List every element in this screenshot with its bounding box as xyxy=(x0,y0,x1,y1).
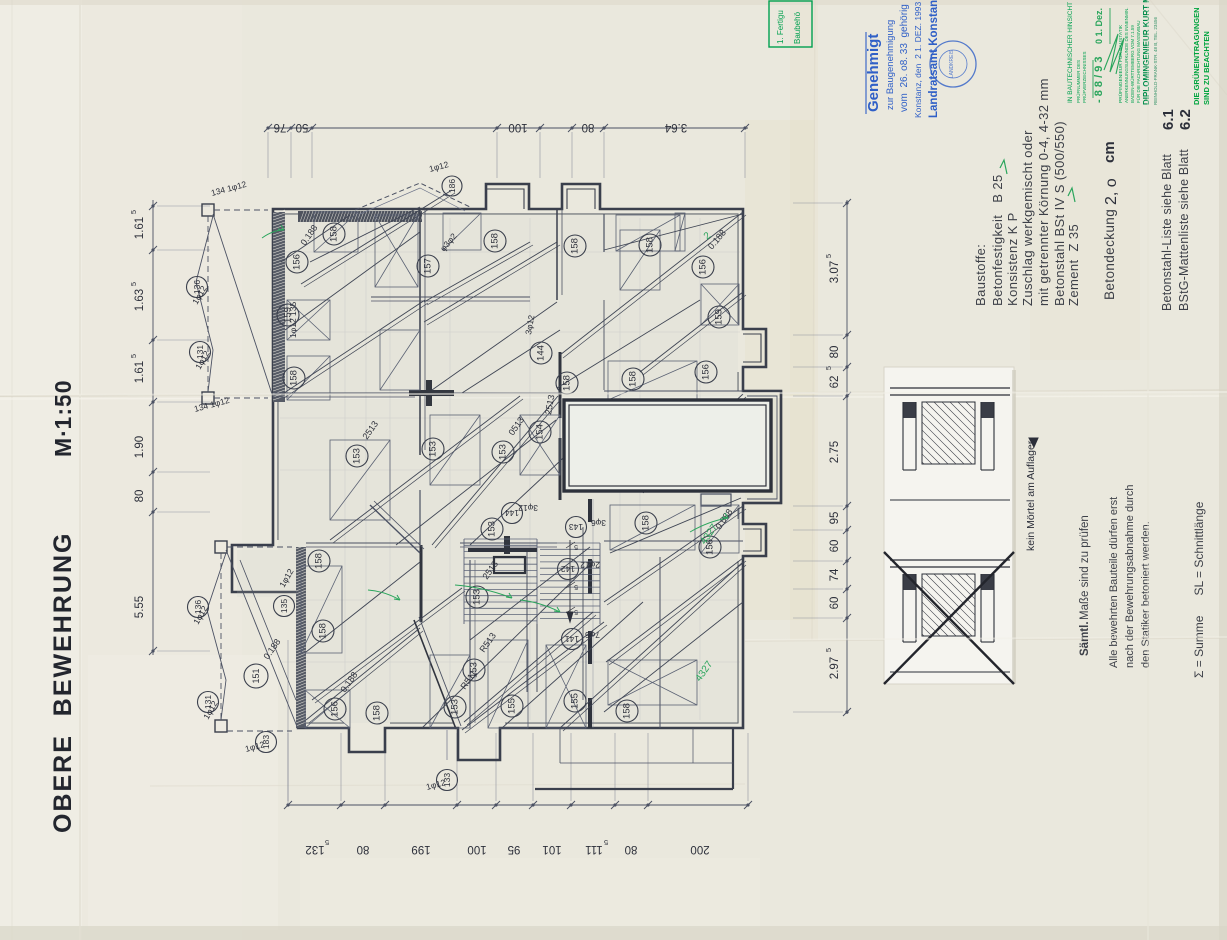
svg-text:159: 159 xyxy=(714,309,725,325)
svg-text:Genehmigt: Genehmigt xyxy=(865,34,882,112)
svg-text:2φ12: 2φ12 xyxy=(580,560,600,570)
svg-text:3φ12: 3φ12 xyxy=(518,503,538,513)
svg-text:1.61: 1.61 xyxy=(134,217,146,239)
svg-text:156: 156 xyxy=(330,701,341,717)
svg-text:5: 5 xyxy=(129,210,138,214)
svg-text:ANERKENNUNGSURKUNDE DES INNENM: ANERKENNUNGSURKUNDE DES INNENMIN. xyxy=(1124,7,1129,103)
svg-text:5.55: 5.55 xyxy=(134,596,146,618)
svg-text:2.97: 2.97 xyxy=(829,657,841,679)
svg-text:100: 100 xyxy=(508,121,527,133)
svg-text:IN BAUTECHNISCHER HINSICHT GEP: IN BAUTECHNISCHER HINSICHT GEPRÜFT xyxy=(1066,0,1074,103)
svg-text:5: 5 xyxy=(574,543,578,550)
svg-text:Betonstahl-Liste siehe Blatt: Betonstahl-Liste siehe Blatt xyxy=(1160,154,1174,311)
svg-text:153: 153 xyxy=(487,521,498,537)
svg-text:zur Baugenehmigung: zur Baugenehmigung xyxy=(885,20,896,110)
svg-text:vom 26. o8. 33 gehörig: vom 26. o8. 33 gehörig xyxy=(899,4,910,112)
svg-text:Zement Z 35: Zement Z 35 xyxy=(1066,224,1081,306)
svg-text:76: 76 xyxy=(274,121,287,133)
svg-text:101: 101 xyxy=(542,843,561,855)
svg-text:158: 158 xyxy=(562,375,573,391)
svg-text:5: 5 xyxy=(129,282,138,286)
svg-text:1.63: 1.63 xyxy=(134,289,146,311)
svg-text:2.75: 2.75 xyxy=(829,441,841,463)
svg-text:REINHOLD-FRANK-STR. 48 B, TEL.: REINHOLD-FRANK-STR. 48 B, TEL. 23456 xyxy=(1153,17,1158,105)
svg-text:50: 50 xyxy=(296,121,309,133)
svg-text:95: 95 xyxy=(829,512,841,525)
svg-text:nach der Bewehrungsabnahme dur: nach der Bewehrungsabnahme durch xyxy=(1124,485,1136,668)
svg-text:6.2: 6.2 xyxy=(1177,109,1194,130)
svg-text:5: 5 xyxy=(824,254,833,258)
svg-text:Alle bewehrten Bauteile dürfen: Alle bewehrten Bauteile dürfen erst xyxy=(1108,497,1120,668)
svg-text:158: 158 xyxy=(628,371,639,387)
svg-text:Konstanz, den 2 1. DEZ. 1993: Konstanz, den 2 1. DEZ. 1993 xyxy=(913,1,923,118)
svg-text:158: 158 xyxy=(289,370,300,386)
svg-text:158: 158 xyxy=(318,623,329,639)
svg-text:Baubehö: Baubehö xyxy=(793,11,802,44)
svg-text:155: 155 xyxy=(570,693,581,709)
svg-text:5: 5 xyxy=(824,648,833,652)
svg-text:Landratsamt Konstanz: Landratsamt Konstanz xyxy=(928,0,940,118)
svg-text:cm: cm xyxy=(1101,141,1118,163)
svg-text:PRÜFINGENIEUR FÜR BAUSTATIK: PRÜFINGENIEUR FÜR BAUSTATIK xyxy=(1117,24,1124,103)
svg-text:62: 62 xyxy=(829,376,841,389)
svg-text:144: 144 xyxy=(505,508,519,518)
svg-text:80: 80 xyxy=(134,490,146,503)
svg-text:132: 132 xyxy=(305,843,324,855)
svg-text:PRÜFNUMMER DES: PRÜFNUMMER DES xyxy=(1075,60,1081,103)
svg-text:0 1. Dez.: 0 1. Dez. xyxy=(1094,8,1104,44)
svg-text:5: 5 xyxy=(604,838,608,847)
svg-text:BADEN-WÜRTTEMBERG VOM 7.1.59: BADEN-WÜRTTEMBERG VOM 7.1.59 xyxy=(1129,25,1135,103)
svg-text:158: 158 xyxy=(314,553,325,569)
svg-text:80: 80 xyxy=(625,843,638,855)
svg-text:3.64: 3.64 xyxy=(664,121,687,133)
svg-text:M∙1:50: M∙1:50 xyxy=(50,379,76,457)
svg-text:80: 80 xyxy=(582,121,595,133)
svg-text:2, o: 2, o xyxy=(1103,178,1120,205)
svg-text:1.61: 1.61 xyxy=(134,361,146,383)
svg-text:FÜR DIE FACHRICHTUNG MASSIVBAU: FÜR DIE FACHRICHTUNG MASSIVBAU xyxy=(1135,20,1141,103)
svg-text:158: 158 xyxy=(641,515,652,531)
svg-text:157: 157 xyxy=(423,258,434,274)
svg-text:158: 158 xyxy=(622,703,633,719)
svg-text:95: 95 xyxy=(508,843,521,855)
svg-text:153: 153 xyxy=(450,699,461,715)
svg-text:200: 200 xyxy=(690,843,709,855)
svg-text:6.1: 6.1 xyxy=(1160,109,1177,130)
svg-text:5: 5 xyxy=(824,366,833,370)
svg-text:156: 156 xyxy=(292,254,303,270)
svg-text:156: 156 xyxy=(701,364,712,380)
svg-text:Zuschlag werkgemischt oder: Zuschlag werkgemischt oder xyxy=(1020,130,1035,306)
svg-text:Maße sind zu prüfen: Maße sind zu prüfen xyxy=(1079,515,1091,620)
svg-text:143: 143 xyxy=(569,522,583,532)
svg-text:LANDKREIS: LANDKREIS xyxy=(949,49,955,78)
svg-text:PRÜFVERZEICHNISSES: PRÜFVERZEICHNISSES xyxy=(1081,51,1087,103)
svg-text:141: 141 xyxy=(565,634,579,644)
svg-text:100: 100 xyxy=(467,843,486,855)
svg-text:158: 158 xyxy=(570,238,581,254)
svg-text:BStG-Mattenliste siehe Blatt: BStG-Mattenliste siehe Blatt xyxy=(1177,149,1191,311)
svg-text:5: 5 xyxy=(325,838,329,847)
svg-text:7φ6: 7φ6 xyxy=(585,630,600,640)
svg-text:60: 60 xyxy=(829,597,841,610)
svg-text:5: 5 xyxy=(574,608,578,615)
svg-text:144: 144 xyxy=(536,345,547,361)
svg-text:142: 142 xyxy=(561,564,575,574)
svg-text:199: 199 xyxy=(411,843,430,855)
svg-text:den Statiker betoniert werden.: den Statiker betoniert werden. xyxy=(1140,521,1152,668)
svg-text:Konsistenz K P: Konsistenz K P xyxy=(1005,212,1020,306)
svg-text:Betonstahl BSt IV S (500/550): Betonstahl BSt IV S (500/550) xyxy=(1052,121,1067,306)
svg-text:kein Mörtel am Auflager: kein Mörtel am Auflager xyxy=(1025,440,1037,551)
svg-text:158: 158 xyxy=(329,226,340,242)
svg-text:SIND ZU BEACHTEN: SIND ZU BEACHTEN xyxy=(1202,31,1211,105)
svg-text:186: 186 xyxy=(447,179,457,193)
svg-text:60: 60 xyxy=(829,540,841,553)
svg-text:1. Fertigu: 1. Fertigu xyxy=(776,10,785,44)
svg-text:Betonfestigkeit B 25: Betonfestigkeit B 25 xyxy=(990,174,1005,306)
svg-text:Σ = Summe SL = Schnittlän: Σ = Summe SL = Schnittlänge xyxy=(1192,501,1206,678)
svg-text:153: 153 xyxy=(352,448,363,464)
svg-text:Baustoffe:: Baustoffe: xyxy=(973,244,988,306)
svg-text:158: 158 xyxy=(372,705,383,721)
svg-text:- 8 8 / 9 3: - 8 8 / 9 3 xyxy=(1093,57,1105,103)
svg-text:158: 158 xyxy=(645,237,656,253)
svg-text:OBERE BEWEHRUNG: OBERE BEWEHRUNG xyxy=(49,532,77,833)
svg-text:156: 156 xyxy=(698,259,709,275)
svg-text:5: 5 xyxy=(129,354,138,358)
svg-text:80: 80 xyxy=(357,843,370,855)
svg-text:DIPLOMINGENIEUR KURT MÄRKT: DIPLOMINGENIEUR KURT MÄRKT xyxy=(1142,0,1151,105)
svg-text:158: 158 xyxy=(490,233,501,249)
svg-text:5: 5 xyxy=(574,583,578,590)
svg-text:159: 159 xyxy=(283,307,294,323)
svg-text:111: 111 xyxy=(585,843,602,855)
svg-text:153: 153 xyxy=(498,444,509,460)
svg-text:153: 153 xyxy=(472,589,483,605)
svg-text:mit getrennter Körnung 0-4, 4-: mit getrennter Körnung 0-4, 4-32 mm xyxy=(1036,78,1051,306)
svg-text:80: 80 xyxy=(829,346,841,359)
svg-text:135: 135 xyxy=(279,599,289,613)
svg-text:154: 154 xyxy=(535,424,546,440)
svg-text:153: 153 xyxy=(428,441,439,457)
svg-text:151: 151 xyxy=(251,668,261,683)
svg-text:74: 74 xyxy=(829,568,841,581)
svg-text:1.90: 1.90 xyxy=(134,436,146,458)
svg-text:3.07: 3.07 xyxy=(829,261,841,283)
svg-text:DIE GRÜNEINTRAGUNGEN: DIE GRÜNEINTRAGUNGEN xyxy=(1192,7,1201,105)
svg-text:3φ6: 3φ6 xyxy=(591,518,606,528)
svg-text:Betondeckung: Betondeckung xyxy=(1102,209,1117,300)
svg-text:155: 155 xyxy=(507,698,518,714)
